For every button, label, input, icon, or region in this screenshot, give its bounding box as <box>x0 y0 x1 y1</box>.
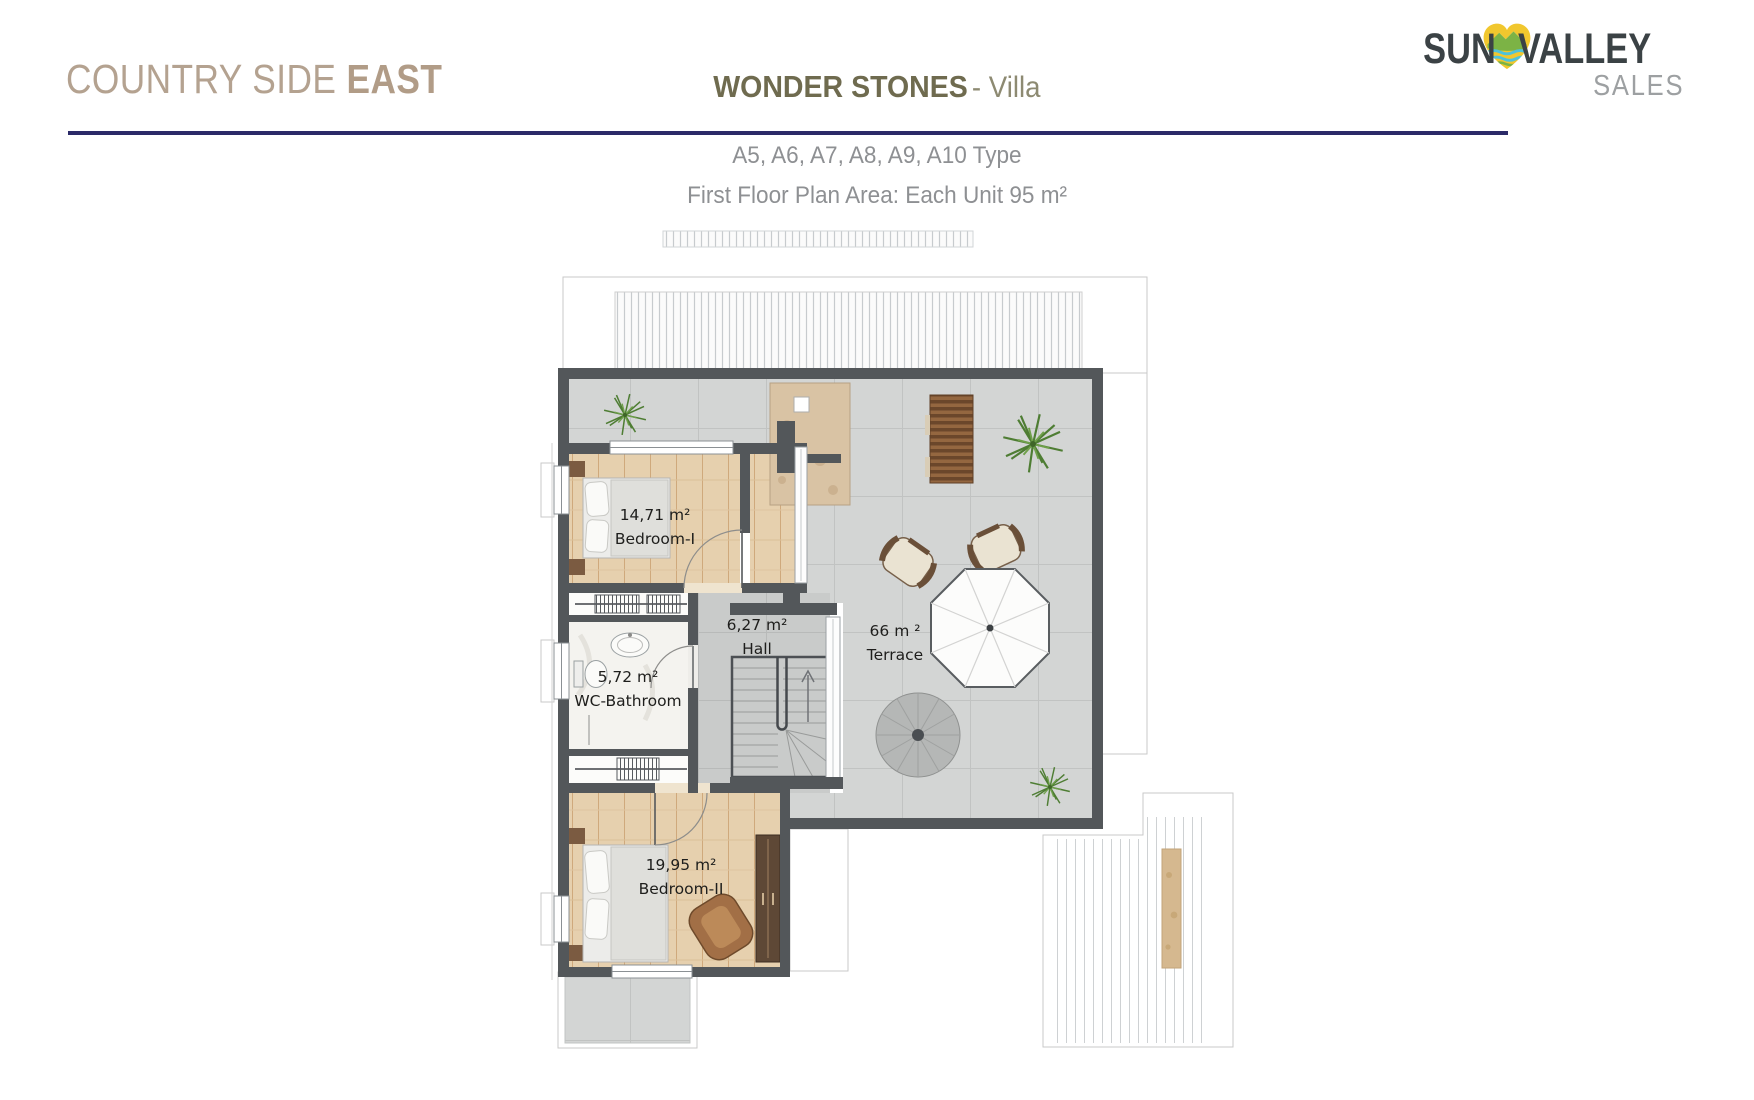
room-area: 66 m ² <box>867 619 923 643</box>
room-label-terrace: 66 m ² Terrace <box>867 619 923 667</box>
logo-valley: VALLEY <box>1518 25 1651 74</box>
room-label-bedroom1: 14,71 m² Bedroom-I <box>615 503 695 551</box>
logo-sales: SALES <box>1438 70 1684 103</box>
brochure-page: COUNTRY SIDE EAST WONDER STONES - Villa … <box>0 0 1754 1100</box>
title-suffix: - Villa <box>972 71 1041 104</box>
logo-sun: SUN <box>1423 25 1496 74</box>
room-area: 5,72 m² <box>574 665 681 689</box>
sunvalley-logo: SUN VALLEY SALES <box>1405 22 1684 103</box>
room-name: Hall <box>727 637 788 661</box>
room-label-wc-bathroom: 5,72 m² WC-Bathroom <box>574 665 681 713</box>
floor-area-subtitle: First Floor Plan Area: Each Unit 95 m² <box>0 182 1754 210</box>
sun-lounger <box>925 395 973 483</box>
room-label-hall: 6,27 m² Hall <box>727 613 788 661</box>
header-divider-line <box>68 131 1508 135</box>
wardrobe <box>756 835 780 962</box>
room-name: WC-Bathroom <box>574 689 681 713</box>
balcony-floor <box>565 977 690 1043</box>
room-area: 6,27 m² <box>727 613 788 637</box>
room-name: Bedroom-II <box>639 877 724 901</box>
sink <box>611 633 649 657</box>
unit-type-subtitle: A5, A6, A7, A8, A9, A10 Type <box>0 142 1754 170</box>
spiral-stair <box>876 693 960 777</box>
floor-plan: 14,71 m² Bedroom-I 6,27 m² Hall 5,72 m² … <box>495 225 1255 1060</box>
room-name: Bedroom-I <box>615 527 695 551</box>
room-name: Terrace <box>867 643 923 667</box>
room-label-bedroom2: 19,95 m² Bedroom-II <box>639 853 724 901</box>
neighbor-roof-hatch <box>1051 817 1205 1043</box>
title-main: WONDER STONES <box>713 69 968 104</box>
room-area: 19,95 m² <box>639 853 724 877</box>
room-area: 14,71 m² <box>615 503 695 527</box>
neighbor-stone-strip <box>1162 849 1181 968</box>
patio-umbrella <box>931 569 1049 687</box>
